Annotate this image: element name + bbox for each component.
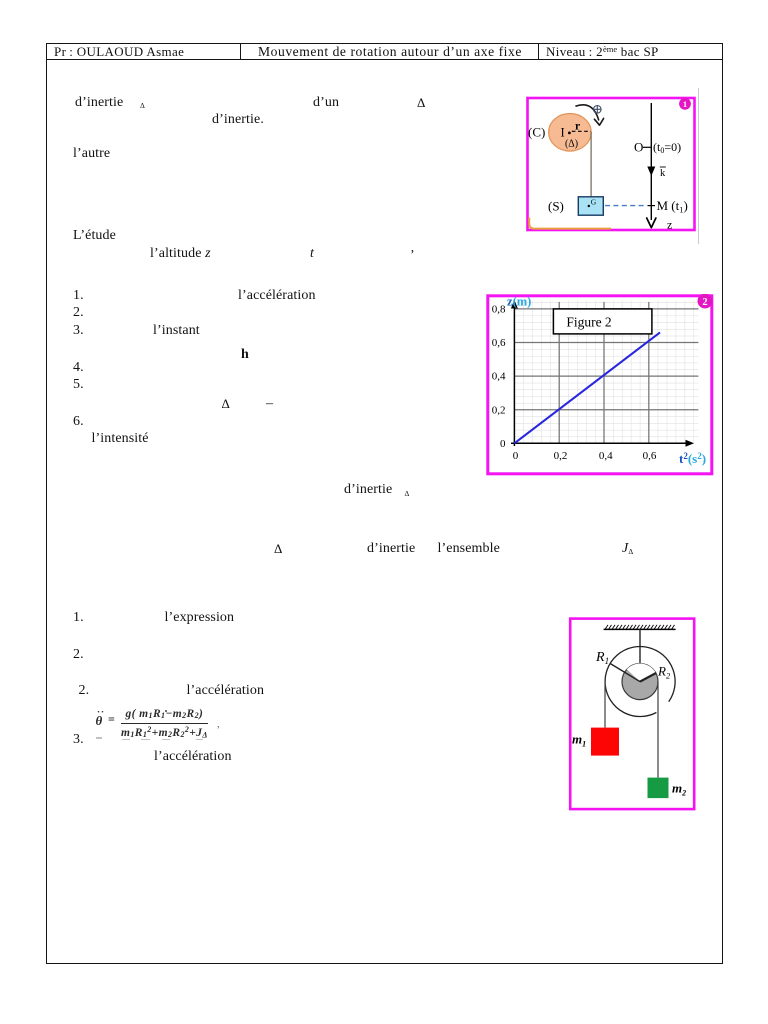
svg-text:z: z: [667, 218, 672, 232]
svg-text:k: k: [660, 168, 666, 179]
svg-text:R2: R2: [657, 664, 671, 681]
svg-text:1: 1: [683, 99, 687, 109]
svg-text:G: G: [591, 198, 597, 207]
svg-text:0,2: 0,2: [554, 450, 568, 462]
svg-text:z(m): z(m): [507, 294, 531, 308]
svg-text:r: r: [575, 121, 580, 133]
svg-text:0,4: 0,4: [599, 450, 613, 462]
svg-text:0,8: 0,8: [492, 303, 506, 315]
svg-text:R1: R1: [595, 650, 609, 666]
svg-text:(S): (S): [548, 199, 564, 214]
svg-text:0: 0: [513, 450, 519, 462]
svg-text:0,6: 0,6: [643, 450, 657, 462]
svg-text:0,2: 0,2: [492, 404, 506, 416]
svg-text:m1: m1: [572, 732, 586, 749]
svg-text:I: I: [561, 126, 565, 140]
svg-text:(Δ): (Δ): [565, 139, 578, 150]
svg-text:0,6: 0,6: [492, 337, 506, 349]
svg-text:(t0=0): (t0=0): [653, 140, 681, 155]
svg-text:Figure 2: Figure 2: [566, 314, 611, 329]
svg-text:M (t1): M (t1): [657, 198, 688, 215]
svg-text:2: 2: [702, 297, 707, 308]
svg-text:t2(s2): t2(s2): [679, 451, 706, 466]
svg-text:m2: m2: [672, 781, 686, 798]
svg-text:(C): (C): [528, 125, 545, 140]
svg-text:O: O: [634, 140, 643, 155]
svg-text:0,4: 0,4: [492, 370, 506, 382]
svg-text:0: 0: [500, 438, 506, 450]
